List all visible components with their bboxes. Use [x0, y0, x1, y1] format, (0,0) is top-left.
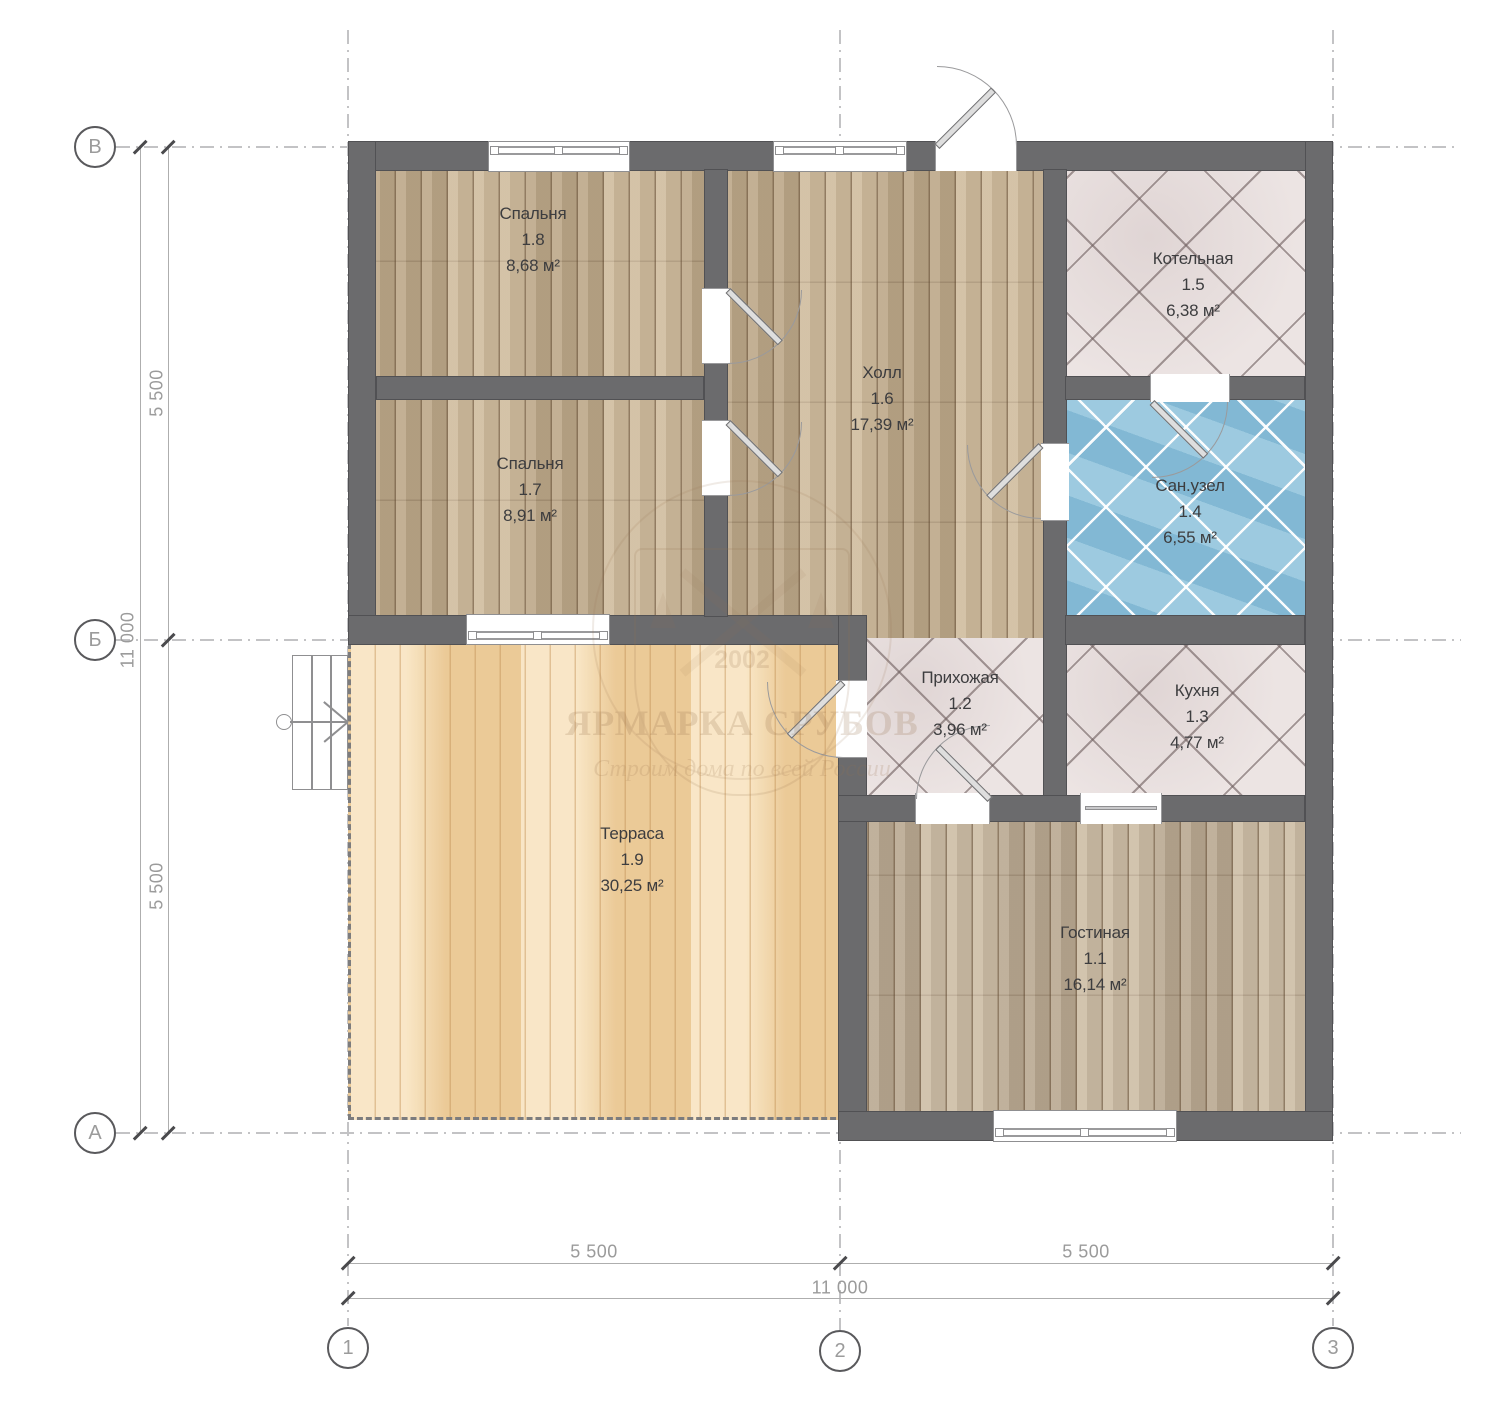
room-label-boiler-room: Котельная 1.5 6,38 м² — [1153, 246, 1234, 324]
room-number: 1.8 — [500, 227, 567, 253]
window-mullion — [1080, 1128, 1089, 1137]
terrace-stairs — [292, 655, 348, 790]
window-mullion — [995, 1128, 1004, 1137]
room-name: Спальня — [500, 201, 567, 227]
room-number: 1.6 — [850, 386, 913, 412]
stair-tread — [311, 656, 313, 789]
room-area: 4,77 м² — [1170, 730, 1224, 756]
room-area: 3,96 м² — [921, 717, 998, 743]
room-number: 1.9 — [600, 847, 664, 873]
room-number: 1.4 — [1155, 499, 1224, 525]
door-panel-kitchen-living — [1085, 806, 1157, 810]
room-label-hall: Холл 1.6 17,39 м² — [850, 360, 913, 438]
axis-label-1: 1 — [342, 1337, 353, 1360]
room-area: 6,38 м² — [1153, 298, 1234, 324]
room-area: 30,25 м² — [600, 873, 664, 899]
room-name: Спальня — [497, 451, 564, 477]
room-label-terrace: Терраса 1.9 30,25 м² — [600, 821, 664, 899]
dim-label-left-overall: 11 000 — [118, 612, 139, 669]
window-mullion — [554, 146, 563, 155]
room-area: 17,39 м² — [850, 412, 913, 438]
wall-bathroom-kitchen-divider — [1065, 615, 1305, 645]
dimension-line-left-overall — [140, 147, 141, 1133]
door-opening-boiler-room — [1150, 374, 1230, 402]
axis-label-2: 2 — [834, 1340, 845, 1363]
window-hall-north — [773, 141, 907, 172]
door-opening-bedroom-1-7 — [702, 420, 730, 496]
window-mullion — [1166, 1128, 1175, 1137]
axis-circle-3: 3 — [1312, 1327, 1354, 1369]
room-name: Холл — [850, 360, 913, 386]
door-opening-bedroom-1-8 — [702, 288, 730, 364]
axis-label-a: А — [88, 1122, 101, 1145]
window-bedroom-1-8 — [488, 141, 630, 172]
room-name: Терраса — [600, 821, 664, 847]
stair-direction-line — [290, 721, 348, 723]
room-name: Сан.узел — [1155, 473, 1224, 499]
window-mullion — [468, 631, 477, 640]
room-number: 1.3 — [1170, 704, 1224, 730]
room-name: Котельная — [1153, 246, 1234, 272]
window-living-room-south — [993, 1110, 1177, 1142]
dim-label-left-top: 5 500 — [147, 369, 168, 417]
axis-circle-v: В — [74, 126, 116, 168]
floor-terrace — [348, 643, 845, 1120]
dim-label-bottom-left: 5 500 — [570, 1242, 618, 1263]
axis-label-v: В — [88, 136, 101, 159]
dim-label-bottom-overall: 11 000 — [812, 1278, 869, 1299]
axis-circle-2: 2 — [819, 1330, 861, 1372]
axis-circle-1: 1 — [327, 1327, 369, 1369]
window-bedroom-1-7-terrace — [466, 614, 610, 645]
dim-label-left-bottom: 5 500 — [147, 862, 168, 910]
room-label-bedroom-1-7: Спальня 1.7 8,91 м² — [497, 451, 564, 529]
window-mullion — [835, 146, 844, 155]
room-number: 1.7 — [497, 477, 564, 503]
window-mullion — [599, 631, 608, 640]
axis-label-b: Б — [88, 629, 101, 652]
room-area: 8,68 м² — [500, 253, 567, 279]
room-number: 1.5 — [1153, 272, 1234, 298]
axis-label-3: 3 — [1327, 1337, 1338, 1360]
room-label-entry-hall: Прихожая 1.2 3,96 м² — [921, 665, 998, 743]
room-area: 16,14 м² — [1060, 972, 1130, 998]
room-area: 6,55 м² — [1155, 525, 1224, 551]
stair-tread — [330, 656, 332, 789]
room-number: 1.2 — [921, 691, 998, 717]
room-area: 8,91 м² — [497, 503, 564, 529]
window-mullion — [619, 146, 628, 155]
wall-between-bedrooms — [376, 376, 704, 400]
room-label-bathroom: Сан.узел 1.4 6,55 м² — [1155, 473, 1224, 551]
room-name: Гостиная — [1060, 920, 1130, 946]
room-label-kitchen: Кухня 1.3 4,77 м² — [1170, 678, 1224, 756]
window-mullion — [775, 146, 784, 155]
axis-circle-b: Б — [74, 619, 116, 661]
room-name: Кухня — [1170, 678, 1224, 704]
door-opening-bathroom — [1041, 443, 1069, 521]
axis-circle-a: А — [74, 1112, 116, 1154]
window-mullion — [896, 146, 905, 155]
dim-label-bottom-right: 5 500 — [1062, 1242, 1110, 1263]
room-number: 1.1 — [1060, 946, 1130, 972]
floor-plan-canvas: { "axes": { "rows": [ {"label": "В"}, {"… — [0, 0, 1500, 1409]
wall-bedrooms-hall-divider — [704, 169, 728, 617]
wall-living-north — [838, 795, 1305, 822]
room-label-living-room: Гостиная 1.1 16,14 м² — [1060, 920, 1130, 998]
window-mullion — [490, 146, 499, 155]
room-name: Прихожая — [921, 665, 998, 691]
wall-exterior-right — [1305, 141, 1333, 1141]
wall-exterior-left — [348, 141, 376, 645]
room-label-bedroom-1-8: Спальня 1.8 8,68 м² — [500, 201, 567, 279]
window-mullion — [533, 631, 542, 640]
